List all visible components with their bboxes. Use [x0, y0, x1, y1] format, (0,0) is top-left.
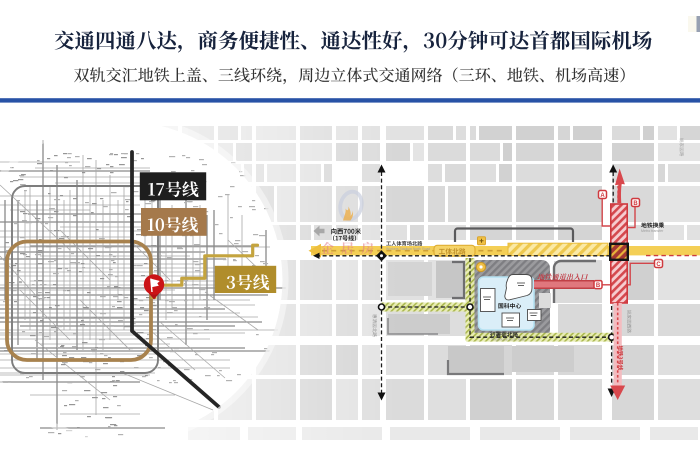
svg-text:B: B	[596, 283, 601, 289]
svg-text:Workers Stadium North Road: Workers Stadium North Road	[386, 247, 430, 251]
svg-text:B: B	[633, 201, 638, 207]
svg-text:Metro transfer: Metro transfer	[641, 229, 664, 233]
svg-text:A: A	[600, 193, 605, 199]
svg-text:XingShuJie North Road: XingShuJie North Road	[491, 338, 526, 342]
svg-text:C: C	[656, 262, 661, 268]
